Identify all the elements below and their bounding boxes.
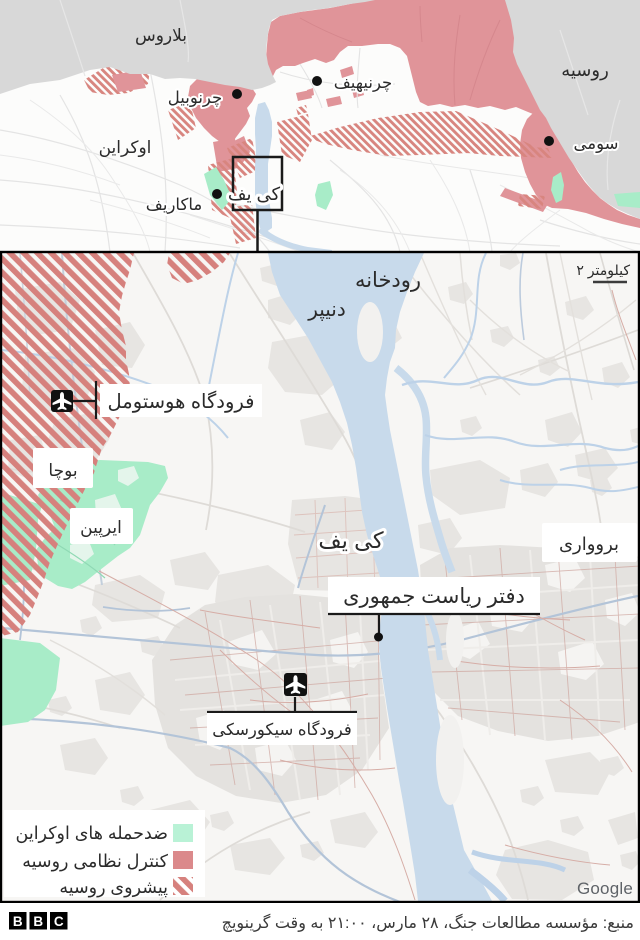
svg-text:۲ کیلومتر: ۲ کیلومتر <box>576 262 630 279</box>
svg-text:فرودگاه هوستومل: فرودگاه هوستومل <box>108 390 255 413</box>
svg-text:چرنوبیل: چرنوبیل <box>168 89 223 108</box>
svg-text:کی یف: کی یف <box>318 528 384 553</box>
svg-text:C: C <box>54 914 64 929</box>
svg-text:رودخانه: رودخانه <box>355 269 421 292</box>
svg-text:B: B <box>33 914 43 929</box>
svg-text:کی یف: کی یف <box>228 184 281 204</box>
svg-text:ضدحمله های اوکراین: ضدحمله های اوکراین <box>16 823 169 844</box>
svg-text:کنترل نظامی روسیه: کنترل نظامی روسیه <box>22 851 168 872</box>
svg-text:B: B <box>13 914 23 929</box>
svg-text:روسیه: روسیه <box>561 60 609 81</box>
svg-text:اوکراین: اوکراین <box>99 138 152 157</box>
svg-text:منبع: مؤسسه مطالعات جنگ، ۲۸ ما: منبع: مؤسسه مطالعات جنگ، ۲۸ مارس، ۲۱:۰۰ … <box>222 913 634 933</box>
svg-text:ماکاریف: ماکاریف <box>146 196 202 215</box>
svg-text:Google: Google <box>577 879 633 898</box>
svg-text:چرنیهیف: چرنیهیف <box>334 74 393 93</box>
svg-text:بلاروس: بلاروس <box>135 26 187 45</box>
svg-text:فرودگاه سیکورسکی: فرودگاه سیکورسکی <box>212 720 352 740</box>
svg-text:بروواری: بروواری <box>559 534 619 555</box>
svg-text:پیشروی روسیه: پیشروی روسیه <box>59 877 168 898</box>
svg-text:بوچا: بوچا <box>48 461 77 481</box>
svg-text:دنیپر: دنیپر <box>307 299 346 322</box>
svg-text:ایرپین: ایرپین <box>80 518 122 538</box>
svg-text:دفتر ریاست جمهوری: دفتر ریاست جمهوری <box>343 585 525 608</box>
svg-text:سومی: سومی <box>574 135 619 154</box>
